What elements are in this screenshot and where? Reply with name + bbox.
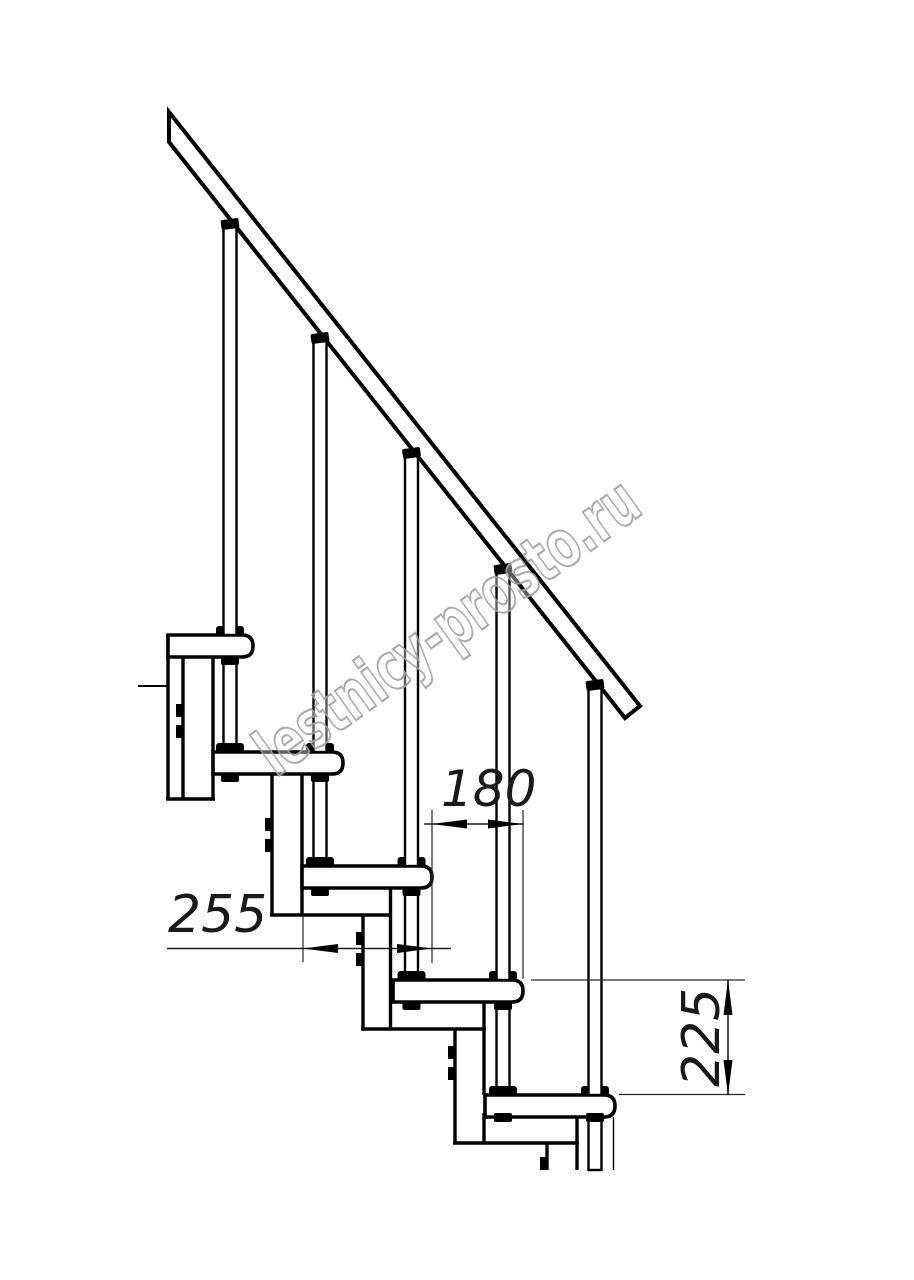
arrowhead-left-icon xyxy=(303,944,338,953)
dimension-255-label: 255 xyxy=(168,885,267,945)
dimension-180: 180 xyxy=(424,760,536,979)
bolt-icon xyxy=(356,932,364,945)
baluster-nut xyxy=(311,773,329,782)
bolt-icon xyxy=(448,1067,456,1080)
bolt-icon xyxy=(176,704,184,717)
baluster-foot xyxy=(398,971,426,981)
baluster-5 xyxy=(589,687,602,1095)
dimension-180-label: 180 xyxy=(441,760,536,818)
bolt-icon xyxy=(356,953,364,966)
staircase-side-elevation: 180 255 225 lestnicy-prosto.ru xyxy=(0,0,914,1280)
baluster-nut xyxy=(586,1113,604,1122)
bolt-icon xyxy=(265,818,273,831)
baluster-nut xyxy=(494,1113,512,1122)
baluster-nut xyxy=(403,887,421,896)
tread-1 xyxy=(168,635,253,657)
arrowhead-left-icon xyxy=(432,820,467,829)
bolt-icon xyxy=(176,725,184,738)
baluster-member-4 xyxy=(497,1000,510,1097)
bolt-icon xyxy=(265,839,273,852)
bolt-icon xyxy=(540,1157,548,1170)
baluster-nut xyxy=(221,656,239,665)
baluster-member-3 xyxy=(405,886,418,982)
baluster-member-2 xyxy=(314,772,327,868)
baluster-1 xyxy=(224,226,237,635)
bolt-icon xyxy=(448,1046,456,1059)
tread-3 xyxy=(302,866,432,888)
baluster-nut xyxy=(311,887,329,896)
baluster-nut xyxy=(494,1001,512,1010)
staircase-drawing-page: 180 255 225 lestnicy-prosto.ru xyxy=(0,0,914,1280)
baluster-nut xyxy=(403,1001,421,1010)
baluster-foot xyxy=(489,1086,517,1096)
dimension-225: 225 xyxy=(531,980,745,1095)
baluster-member-1 xyxy=(224,655,237,754)
dimension-225-label: 225 xyxy=(672,988,732,1087)
tread-4 xyxy=(393,980,523,1002)
baluster-nut xyxy=(221,773,239,782)
baluster-foot xyxy=(216,743,244,753)
baluster-foot xyxy=(306,857,334,867)
